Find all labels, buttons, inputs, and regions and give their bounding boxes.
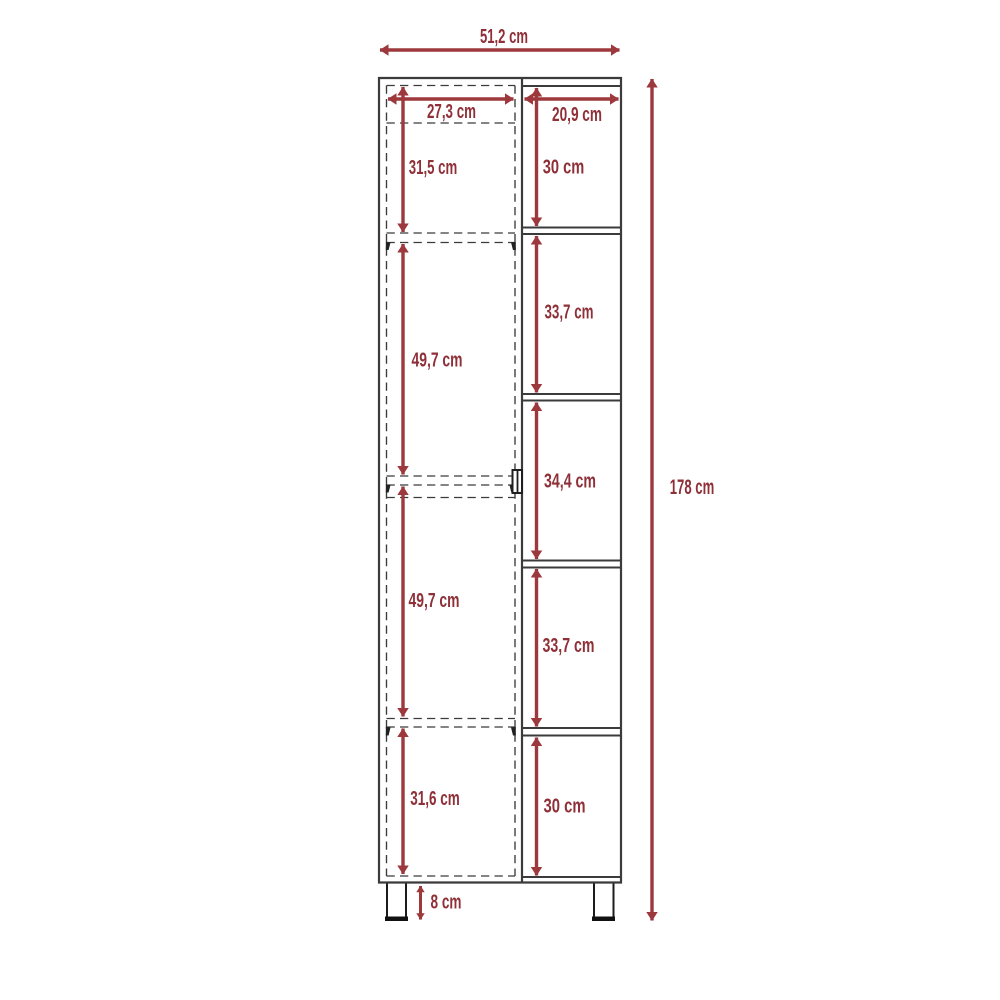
svg-text:178 cm: 178 cm bbox=[670, 476, 715, 499]
svg-text:33,7 cm: 33,7 cm bbox=[543, 634, 595, 657]
svg-text:27,3 cm: 27,3 cm bbox=[427, 100, 476, 123]
svg-text:31,6 cm: 31,6 cm bbox=[410, 787, 460, 810]
svg-text:49,7 cm: 49,7 cm bbox=[409, 589, 460, 612]
svg-text:31,5 cm: 31,5 cm bbox=[409, 156, 458, 179]
svg-text:8 cm: 8 cm bbox=[431, 891, 462, 914]
svg-text:51,2 cm: 51,2 cm bbox=[480, 25, 528, 48]
svg-text:30 cm: 30 cm bbox=[543, 156, 585, 179]
svg-text:49,7 cm: 49,7 cm bbox=[412, 349, 463, 372]
svg-text:33,7 cm: 33,7 cm bbox=[545, 301, 594, 324]
svg-text:30 cm: 30 cm bbox=[544, 795, 586, 818]
svg-text:34,4 cm: 34,4 cm bbox=[544, 470, 596, 493]
svg-text:20,9 cm: 20,9 cm bbox=[552, 103, 602, 126]
